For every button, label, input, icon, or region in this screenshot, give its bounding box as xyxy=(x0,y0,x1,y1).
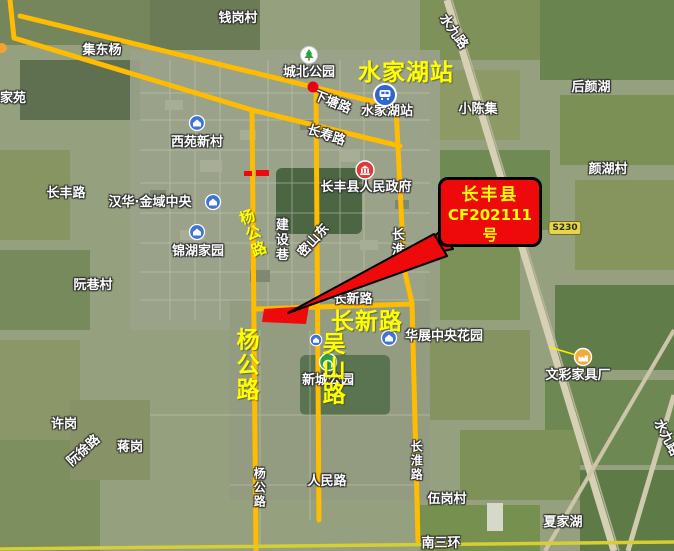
annotation-road-label: 吴山路 xyxy=(319,332,343,407)
annotation-road-label: 水家湖站 xyxy=(358,61,454,85)
road-red-dash xyxy=(244,171,252,176)
callout-arrow xyxy=(288,234,447,313)
annotation-road-label: 杨公路 xyxy=(233,328,257,403)
callout-county-line: 长丰县 xyxy=(462,180,519,205)
red-annotation-layer xyxy=(0,0,674,551)
factory-pointer-line xyxy=(549,347,576,355)
road-red-dash xyxy=(256,170,269,176)
annotation-road-label: 长新路 xyxy=(331,310,403,334)
satellite-map-canvas[interactable]: 钱岗村集东杨家苑城北公园下塘路水家湖站小陈集后颜湖颜湖村西苑新村长寿路长丰路汉华… xyxy=(0,0,674,551)
callout-code-line: CF202111 xyxy=(448,206,532,224)
parcel-callout: 长丰县 CF202111 号 xyxy=(438,177,542,247)
callout-number-line: 号 xyxy=(482,224,497,245)
red-dot-marker xyxy=(308,82,319,93)
